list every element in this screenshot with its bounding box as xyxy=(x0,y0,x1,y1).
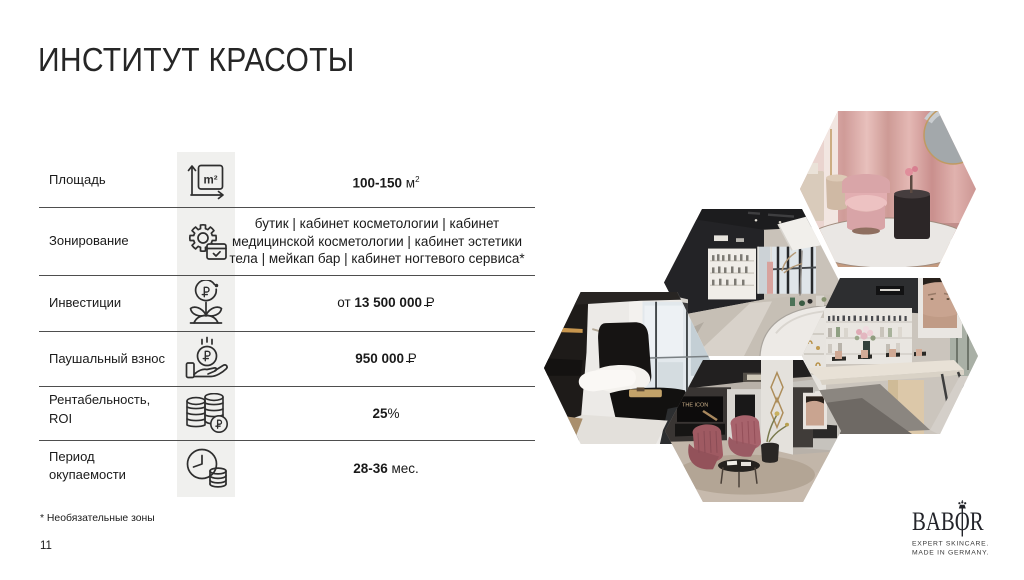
svg-text:m²: m² xyxy=(204,175,218,187)
svg-text:THE ICON: THE ICON xyxy=(682,403,708,409)
svg-text:BABOR: BABOR xyxy=(912,508,984,537)
svg-text:EXPERT SKINCARE.: EXPERT SKINCARE. xyxy=(912,541,989,548)
svg-text:MADE IN GERMANY.: MADE IN GERMANY. xyxy=(912,550,989,557)
